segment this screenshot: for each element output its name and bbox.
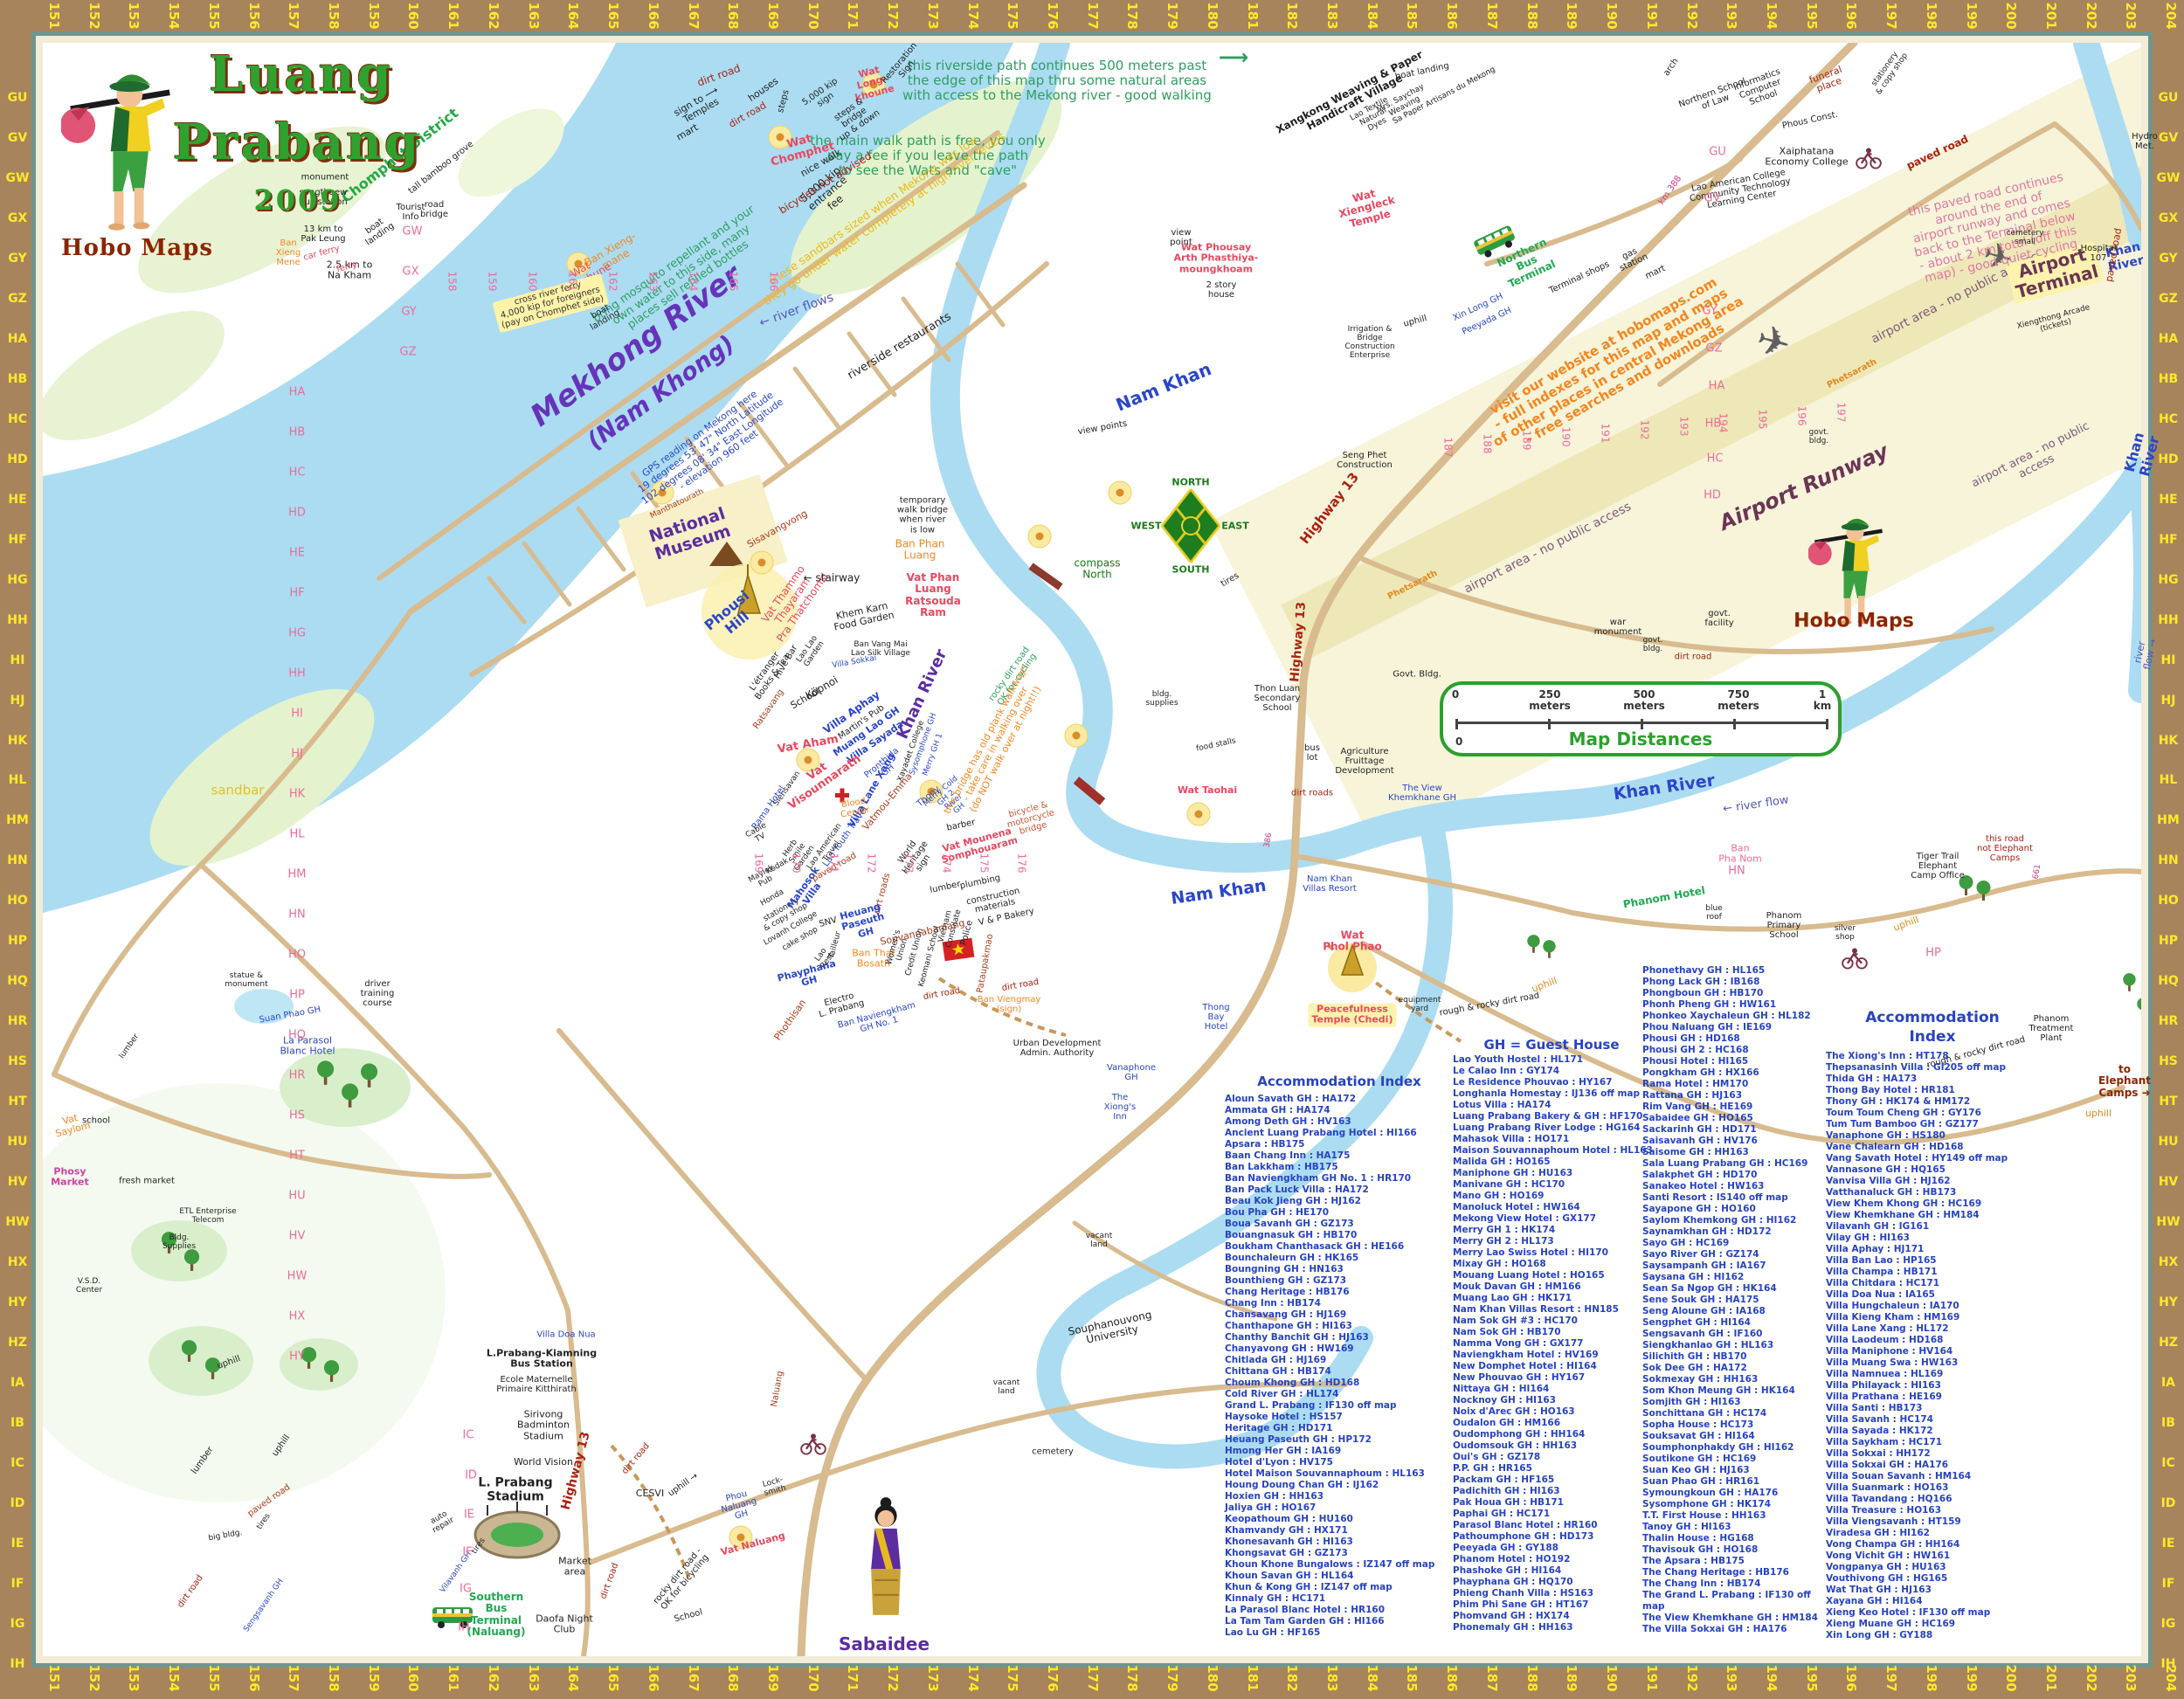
grid-number: 194 — [1764, 1664, 1780, 1691]
index-entry: Heritage GH : HD171 — [1225, 1423, 1434, 1434]
map-label: IG — [460, 1584, 472, 1597]
map-label: 161 — [566, 272, 577, 292]
index-entry: Houng Doung Chan GH : IJ162 — [1225, 1480, 1434, 1491]
index-entry: Phayphana GH : HQ170 — [1453, 1577, 1653, 1588]
index-entry: Mouang Luang Hotel : HO165 — [1453, 1270, 1653, 1281]
scale-tick-label: 1 km — [1814, 689, 1831, 711]
grid-number: 181 — [1245, 1664, 1261, 1691]
map-label: equipment yard — [1399, 996, 1441, 1013]
index-entry: Xieng Muane GH : HC169 — [1826, 1619, 2008, 1630]
index-entry: Thong Bay Hotel : HR181 — [1826, 1085, 2008, 1096]
index-entry: Siengkhanlao GH : HL163 — [1642, 1340, 1822, 1351]
grid-number: 154 — [166, 2, 182, 29]
grid-letter: IE — [11, 1537, 24, 1551]
index-entry: Villa Hungchaleun : IA170 — [1826, 1301, 2008, 1312]
grid-letter: HI — [10, 653, 25, 667]
grid-letter: ID — [10, 1496, 25, 1510]
index-entry: The View Khemkhane GH : HM184 — [1642, 1613, 1822, 1624]
index-entry: Phashoke GH : HI164 — [1453, 1565, 1653, 1577]
grid-letter: HF — [8, 533, 26, 547]
grid-letter: HU — [2158, 1135, 2178, 1149]
index-entry: Muang Lao GH : HK171 — [1453, 1293, 1653, 1304]
index-entry: Phongboun GH : HB170 — [1642, 988, 1822, 999]
grid-letter: HR — [2159, 1014, 2179, 1028]
index-entry: Villa Aphay : HJ171 — [1826, 1244, 2008, 1255]
map-label: 197 — [1835, 403, 1846, 423]
index-entry: La Parasol Blanc Hotel : HR160 — [1225, 1605, 1434, 1616]
grid-number: 188 — [1524, 1664, 1540, 1691]
map-label: Tiger Trail Elephant Camp Office — [1911, 852, 1965, 881]
map-label: Phanom Primary School — [1766, 911, 1802, 941]
map-label: HA — [1709, 381, 1725, 394]
index-entry: Symoungkoun GH : HA176 — [1642, 1488, 1822, 1499]
index-entry: Suan Keo GH : HJ163 — [1642, 1465, 1822, 1476]
index-entry: Tum Tum Bamboo GH : GZ177 — [1826, 1119, 2008, 1130]
index-entry: Sysomphone GH : HK174 — [1642, 1499, 1822, 1510]
map-label: Urban Development Admin. Authority — [1013, 1039, 1102, 1058]
map-label: Ban Phan Luang — [895, 539, 945, 563]
grid-letter: GV — [2159, 131, 2178, 145]
grid-letter: HT — [2159, 1095, 2177, 1108]
index-entry: Cold River GH : HL174 — [1225, 1389, 1434, 1400]
grid-number: 190 — [1604, 1664, 1620, 1691]
index-entry: Peeyada GH : GY188 — [1453, 1543, 1653, 1554]
grid-letter: IB — [10, 1416, 24, 1430]
map-label: statue & monument — [225, 971, 267, 989]
map-label: 189 — [1520, 431, 1531, 451]
index-entry: Soumphonphakdy GH : HI162 — [1642, 1442, 1822, 1454]
map-label: Daofa Night Club — [536, 1614, 593, 1636]
grid-letter: HI — [2161, 653, 2176, 667]
index-entry: Saynamkhan GH : HD172 — [1642, 1226, 1822, 1238]
map-label: World Vision — [514, 1457, 573, 1468]
index-entry: Phanom Hotel : HO192 — [1453, 1554, 1653, 1565]
index-entry: Thony GH : HK174 & HM172 — [1826, 1096, 2008, 1108]
map-label: HN — [288, 909, 306, 922]
index-entry: Lao Lu GH : HF165 — [1225, 1627, 1434, 1639]
index-entry: Ban Naviengkham GH No. 1 : HR170 — [1225, 1173, 1434, 1184]
map-label: Xaiphatana Economy College — [1765, 147, 1848, 169]
index-entry: Vannasone GH : HQ165 — [1826, 1164, 2008, 1176]
grid-letter: GV — [8, 131, 27, 145]
index-entry: Vilay GH : HI163 — [1826, 1233, 2008, 1244]
grid-letter: HL — [2160, 773, 2178, 787]
map-label: Ban Viengmay (sign) — [978, 995, 1041, 1014]
index-entry: Bouangnasuk GH : HB170 — [1225, 1230, 1434, 1241]
index-entry: The Chang Heritage : HB176 — [1642, 1567, 1822, 1578]
map-label: IE — [464, 1509, 474, 1523]
index-entry: Oui's GH : GZ178 — [1453, 1452, 1653, 1463]
map-label: V.S.D. Center — [76, 1277, 102, 1295]
index-entry: Merry GH 1 : HK174 — [1453, 1225, 1653, 1236]
map-label: uphill — [2085, 1108, 2111, 1119]
grid-letter: IH — [2161, 1657, 2176, 1671]
map-label: GX — [403, 266, 419, 280]
grid-number: 189 — [1564, 1664, 1579, 1691]
grid-letter: HP — [8, 934, 27, 948]
grid-number: 183 — [1324, 1664, 1340, 1691]
map-label: HB — [289, 427, 306, 440]
map-label: HJ — [291, 749, 303, 762]
map-label: HX — [289, 1311, 306, 1324]
index-entry: Villa Philayack : HI163 — [1826, 1380, 2008, 1392]
map-label: ID — [465, 1470, 477, 1483]
grid-number: 189 — [1564, 2, 1579, 29]
index-entry: Sonchittana GH : HC174 — [1642, 1408, 1822, 1419]
grid-number: 151 — [46, 1664, 62, 1691]
grid-letter: HY — [2159, 1295, 2178, 1309]
index-entry: Heuang Paseuth GH : HP172 — [1225, 1434, 1434, 1446]
index-entry: Villa Maniphone : HV164 — [1826, 1346, 2008, 1357]
index-entry: Nam Sok GH : HB170 — [1453, 1327, 1653, 1338]
index-entry: Xieng Keo Hotel : IF130 off map — [1826, 1607, 2008, 1619]
index-entry: Phousi Hotel : HI165 — [1642, 1056, 1822, 1067]
map-label: Vat Phan Luang Ratsouda Ram — [905, 572, 961, 619]
grid-letter: GW — [6, 171, 30, 185]
map-label: HA — [289, 387, 306, 400]
index-entry: Villa Sayada : HK172 — [1826, 1426, 2008, 1437]
index-entry: Sene Souk GH : HA175 — [1642, 1295, 1822, 1306]
map-label: Vanaphone GH — [1107, 1063, 1156, 1082]
grid-number: 162 — [486, 1664, 501, 1691]
grid-letter: HX — [2159, 1255, 2179, 1269]
index-entry: Ban Lakkham : HB175 — [1225, 1162, 1434, 1173]
index-entry: Xin Long GH : GY188 — [1826, 1630, 2008, 1641]
index-entry: Saysampanh GH : IA167 — [1642, 1260, 1822, 1272]
map-label: govt. bldg. — [1809, 428, 1829, 445]
grid-number: 158 — [326, 1664, 342, 1691]
map-label: 173 — [902, 853, 914, 874]
map-label: temporary walk bridge when river is low — [897, 496, 948, 535]
index-entry: Villa Muang Swa : HW163 — [1826, 1357, 2008, 1369]
grid-number: 178 — [1124, 1664, 1140, 1691]
index-entry: Villa Viengsavanh : HT159 — [1826, 1516, 2008, 1528]
grid-letter: HG — [7, 573, 27, 587]
map-label: HY — [289, 1351, 305, 1364]
accommodation-index-col3: Phonethavy GH : HL165Phong Lack GH : IB1… — [1642, 965, 1822, 1635]
index-entry: Villa Savanh : HC174 — [1826, 1414, 2008, 1426]
grid-number: 191 — [1644, 1664, 1660, 1691]
grid-letter: HE — [8, 493, 26, 507]
map-label: 190 — [1559, 427, 1571, 447]
grid-number: 203 — [2123, 2, 2139, 29]
index-entry: Vouthivong GH : HG165 — [1826, 1573, 2008, 1585]
grid-number: 184 — [1365, 1664, 1380, 1691]
index-entry: Boukham Chanthasack GH : HE166 — [1225, 1241, 1434, 1253]
map-label: ← stairway — [804, 572, 860, 584]
grid-number: 174 — [965, 2, 981, 29]
grid-number: 192 — [1684, 1664, 1700, 1691]
index-entry: Chang Inn : HB174 — [1225, 1298, 1434, 1309]
index-entry: Salakphet GH : HD170 — [1642, 1170, 1822, 1181]
index-entry: Saisome GH : HH163 — [1642, 1147, 1822, 1158]
index-entry: Phim Phi Sane GH : HT167 — [1453, 1599, 1653, 1611]
map-label: 171 — [827, 853, 839, 874]
map-label: HR — [289, 1070, 306, 1083]
grid-letter: GU — [2159, 91, 2179, 105]
hobo-maps-brand: Hobo Maps — [61, 235, 213, 261]
map-label: Ban Vang Mai Lao Silk Village — [851, 640, 910, 658]
map-label: 170 — [790, 853, 801, 874]
index-entry: Lao Youth Hostel : HL171 — [1453, 1054, 1653, 1066]
index-entry: Oudomphong GH : HH164 — [1453, 1429, 1653, 1440]
grid-letter: HF — [2159, 533, 2177, 547]
index-entry: Sabaidee GH : HO165 — [1642, 1113, 1822, 1124]
grid-number: 171 — [845, 2, 860, 29]
grid-number: 204 — [2163, 2, 2179, 29]
map-label: HI — [291, 708, 303, 722]
grid-letter: HA — [8, 332, 28, 346]
map-label: school — [82, 1115, 110, 1125]
index-entry: Vang Savath Hotel : HY149 off map — [1826, 1153, 2008, 1164]
index-entry: View Khemkhane GH : HM184 — [1826, 1210, 2008, 1221]
map-label: 165 — [727, 272, 738, 292]
map-label: Govt. Bldg. — [1393, 669, 1441, 679]
index-entry: Villa Tavandang : HQ166 — [1826, 1494, 2008, 1505]
index-entry: Rama Hotel : HM170 — [1642, 1079, 1822, 1090]
index-entry: La Tam Tam Garden GH : HI166 — [1225, 1616, 1434, 1627]
map-label: HS — [289, 1110, 305, 1123]
map-title-year: 2009 — [253, 183, 342, 217]
index-entry: Manivane GH : HC170 — [1453, 1179, 1653, 1191]
index-entry: Vilavanh GH : IG161 — [1826, 1221, 2008, 1233]
grid-number: 201 — [2043, 1664, 2059, 1691]
grid-letter: HW — [2156, 1215, 2180, 1229]
map-label: Thon Luan Secondary School — [1254, 684, 1301, 714]
map-label: dirt roads — [1291, 788, 1333, 798]
grid-number: 177 — [1085, 1664, 1101, 1691]
index-entry: Sean Sa Ngop GH : HK164 — [1642, 1283, 1822, 1295]
map-label: IC — [463, 1430, 474, 1443]
map-label: monument — [301, 172, 349, 182]
grid-letter: HV — [2159, 1175, 2179, 1189]
grid-number: 196 — [1843, 1664, 1859, 1691]
index-entry: Saysana GH : HI162 — [1642, 1272, 1822, 1283]
index-entry: Sala Luang Prabang GH : HC169 — [1642, 1158, 1822, 1170]
grid-number: 176 — [1045, 2, 1061, 29]
map-label: GV — [1704, 193, 1721, 206]
index-entry: The Apsara : HB175 — [1642, 1556, 1822, 1567]
scale-tick-label: 500 meters — [1623, 689, 1665, 711]
map-label: Irrigation & Bridge Construction Enterpr… — [1344, 325, 1394, 360]
grid-number: 168 — [725, 1664, 741, 1691]
index-entry: Santi Resort : IS140 off map — [1642, 1192, 1822, 1204]
grid-letter: HC — [2159, 412, 2178, 426]
hobo-figure — [60, 74, 170, 230]
map-label: HC — [1707, 453, 1724, 466]
grid-number: 174 — [965, 1664, 981, 1691]
index-entry: Sopha House : HC173 — [1642, 1419, 1822, 1431]
grid-number: 199 — [1964, 1664, 1980, 1691]
index-entry: Sok Dee GH : HA172 — [1642, 1363, 1822, 1374]
index-entry: The Grand L. Prabang : IF130 off map — [1642, 1590, 1822, 1613]
stadium-icon — [475, 1502, 559, 1557]
grid-number: 175 — [1005, 2, 1020, 29]
grid-number: 173 — [925, 1664, 941, 1691]
index-entry: New Domphet Hotel : HI164 — [1453, 1361, 1653, 1372]
map-label: GZ — [400, 347, 417, 360]
index-entry: Among Deth GH : HV163 — [1225, 1116, 1434, 1128]
index-entry: Sengphet GH : HI164 — [1642, 1317, 1822, 1329]
index-entry: Villa Prathana : HE169 — [1826, 1392, 2008, 1403]
index-entry: Vatthanaluck GH : HB173 — [1826, 1187, 2008, 1198]
grid-letter: HT — [8, 1095, 26, 1108]
grid-number: 186 — [1444, 2, 1460, 29]
grid-number: 162 — [486, 2, 501, 29]
index-header-3: Accommodation Index — [1865, 1008, 1999, 1046]
map-label: Hydro Met. — [2132, 132, 2158, 151]
index-entry: Phonkeo Xaychaleun GH : HL182 — [1642, 1011, 1822, 1022]
grid-number: 171 — [845, 1664, 860, 1691]
index-entry: Chanthapone GH : HI163 — [1225, 1321, 1434, 1332]
index-entry: Phieng Chanh Villa : HS163 — [1453, 1588, 1653, 1599]
index-entry: Khoun Khone Bungalows : IZ147 off map — [1225, 1559, 1434, 1571]
map-label: this road not Elephant Camps — [1977, 834, 2033, 864]
map-label: Phanom Treatment Plant — [2029, 1014, 2074, 1044]
index-entry: Tanoy GH : HI163 — [1642, 1522, 1822, 1533]
grid-letter: ID — [2161, 1496, 2176, 1510]
map-label: Villa Doa Nua — [536, 1330, 595, 1339]
grid-number: 152 — [86, 2, 102, 29]
map-label: 195 — [1756, 410, 1767, 430]
grid-number: 193 — [1724, 1664, 1739, 1691]
map-label: HT — [289, 1150, 305, 1164]
index-entry: Silichith GH : HB170 — [1642, 1351, 1822, 1363]
map-label: driver training course — [361, 979, 395, 1009]
compass-east-label: EAST — [1221, 521, 1248, 532]
grid-number: 166 — [646, 2, 661, 29]
index-entry: Merry GH 2 : HL173 — [1453, 1236, 1653, 1247]
index-entry: Jaliya GH : HO167 — [1225, 1502, 1434, 1514]
index-entry: Packam GH : HF165 — [1453, 1475, 1653, 1486]
grid-letter: HY — [8, 1295, 27, 1309]
map-label: 169 — [752, 853, 764, 874]
map-label: Ban Xieng Mene — [276, 238, 301, 268]
map-label: HG — [288, 628, 306, 641]
index-entry: Grand L. Prabang : IF130 off map — [1225, 1400, 1434, 1412]
map-label: HK — [289, 789, 305, 802]
grid-number: 152 — [86, 1664, 102, 1691]
grid-letter: HD — [7, 452, 27, 466]
map-label: ⟶ — [1219, 46, 1248, 70]
grid-letter: IH — [10, 1657, 25, 1671]
map-label: Seng Phet Construction — [1337, 451, 1393, 470]
index-entry: Thida GH : HA173 — [1826, 1074, 2008, 1085]
grid-number: 163 — [526, 1664, 542, 1691]
index-entry: Thavisouk GH : HO168 — [1642, 1544, 1822, 1556]
grid-number: 188 — [1524, 2, 1540, 29]
grid-letter: HM — [6, 813, 29, 827]
map-label: silver shop — [1835, 924, 1856, 942]
map-label: 188 — [1481, 434, 1492, 454]
index-entry: Khoun Savan GH : HL164 — [1225, 1571, 1434, 1582]
map-label: cemetery — [1032, 1447, 1074, 1456]
index-entry: Som Khon Meung GH : HK164 — [1642, 1385, 1822, 1397]
map-label: CESVI — [636, 1488, 664, 1499]
index-entry: Manoluck Hotel : HW164 — [1453, 1202, 1653, 1213]
map-label: HC — [289, 467, 306, 480]
grid-letter: HE — [2159, 493, 2177, 507]
index-entry: Ancient Luang Prabang Hotel : HI166 — [1225, 1128, 1434, 1139]
grid-number: 168 — [725, 2, 741, 29]
index-entry: Thalin House : HG168 — [1642, 1533, 1822, 1544]
grid-letter: GY — [2159, 252, 2177, 266]
index-entry: Boungning GH : HN163 — [1225, 1264, 1434, 1275]
index-entry: Nam Khan Villas Resort : HN185 — [1453, 1304, 1653, 1316]
index-entry: Phonethavy GH : HL165 — [1642, 965, 1822, 977]
map-label: compass North — [1074, 558, 1120, 582]
grid-number: 164 — [565, 2, 581, 29]
map-label: 193 — [1677, 417, 1689, 437]
grid-letter: HO — [2158, 894, 2179, 908]
grid-number: 175 — [1005, 1664, 1020, 1691]
grid-number: 198 — [1924, 2, 1939, 29]
grid-number: 180 — [1205, 1664, 1220, 1691]
grid-letter: IE — [2162, 1537, 2175, 1551]
index-entry: Sackarinh GH : HD171 — [1642, 1124, 1822, 1136]
index-header-1: Accommodation Index — [1257, 1074, 1421, 1089]
grid-letter: HO — [7, 894, 28, 908]
map-label: Nam Khan Villas Resort — [1303, 874, 1356, 894]
grid-letter: HW — [5, 1215, 29, 1229]
index-entry: Maison Souvannaphoum Hotel : HL163 — [1453, 1145, 1653, 1157]
map-label: fresh market — [119, 1176, 175, 1185]
grid-letter: HC — [8, 412, 27, 426]
index-entry: Hoxien GH : HH163 — [1225, 1491, 1434, 1502]
grid-number: 157 — [286, 1664, 301, 1691]
index-entry: Ammata GH : HA174 — [1225, 1105, 1434, 1116]
index-entry: Bounchaleurn GH : HK165 — [1225, 1253, 1434, 1264]
map-label: Sabaidee — [839, 1634, 930, 1654]
map-label: bus lot — [1304, 743, 1320, 763]
index-entry: Oudalon GH : HM166 — [1453, 1418, 1653, 1429]
index-entry: Rattana GH : HJ163 — [1642, 1090, 1822, 1102]
map-label: GY — [401, 307, 416, 320]
index-entry: Lotus Villa : HA174 — [1453, 1100, 1653, 1111]
index-entry: Phousi GH 2 : HC168 — [1642, 1045, 1822, 1056]
index-entry: Sayapone GH : HO160 — [1642, 1204, 1822, 1215]
grid-number: 156 — [246, 2, 262, 29]
index-entry: Villa Ban Lao : HP165 — [1826, 1255, 2008, 1267]
index-entry: Paphai GH : HC171 — [1453, 1509, 1653, 1520]
grid-number: 153 — [126, 2, 142, 29]
index-entry: Padichith GH : HI163 — [1453, 1486, 1653, 1497]
map-label: bldg. supplies — [1145, 690, 1178, 708]
grid-number: 160 — [405, 1664, 421, 1691]
grid-number: 165 — [605, 1664, 621, 1691]
grid-letter: IF — [11, 1577, 24, 1591]
index-entry: Rim Vang GH : HE169 — [1642, 1102, 1822, 1113]
index-entry: Nam Sok GH #3 : HC170 — [1453, 1316, 1653, 1327]
index-entry: Phonh Pheng GH : HW161 — [1642, 999, 1822, 1011]
index-entry: Merry Lao Swiss Hotel : HI170 — [1453, 1247, 1653, 1259]
grid-number: 196 — [1843, 2, 1859, 29]
grid-number: 202 — [2084, 1664, 2099, 1691]
index-entry: Villa Souan Savanh : HM164 — [1826, 1471, 2008, 1482]
grid-letter: HL — [9, 773, 27, 787]
grid-letter: GX — [8, 211, 27, 225]
map-label: 175 — [978, 853, 989, 874]
grid-number: 157 — [286, 2, 301, 29]
grid-number: 192 — [1684, 2, 1700, 29]
index-entry: Vong Champa GH : HH164 — [1826, 1539, 2008, 1551]
map-label: IH — [458, 1622, 470, 1635]
grid-letter: IA — [10, 1376, 24, 1390]
index-entry: Saylom Khemkong GH : HI162 — [1642, 1215, 1822, 1226]
grid-letter: HZ — [8, 1336, 27, 1350]
grid-number: 187 — [1484, 1664, 1500, 1691]
grid-letter: GY — [8, 252, 26, 266]
